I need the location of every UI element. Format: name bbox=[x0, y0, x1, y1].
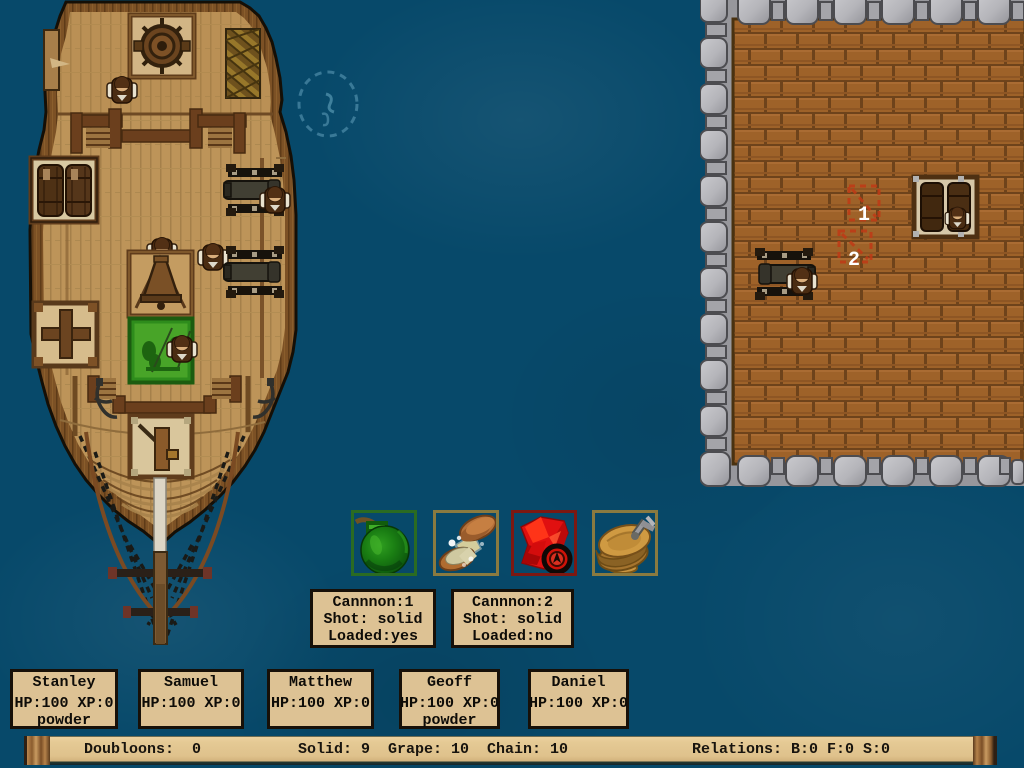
svg-text:1: 1 bbox=[858, 204, 870, 227]
svg-text:2: 2 bbox=[848, 249, 860, 272]
